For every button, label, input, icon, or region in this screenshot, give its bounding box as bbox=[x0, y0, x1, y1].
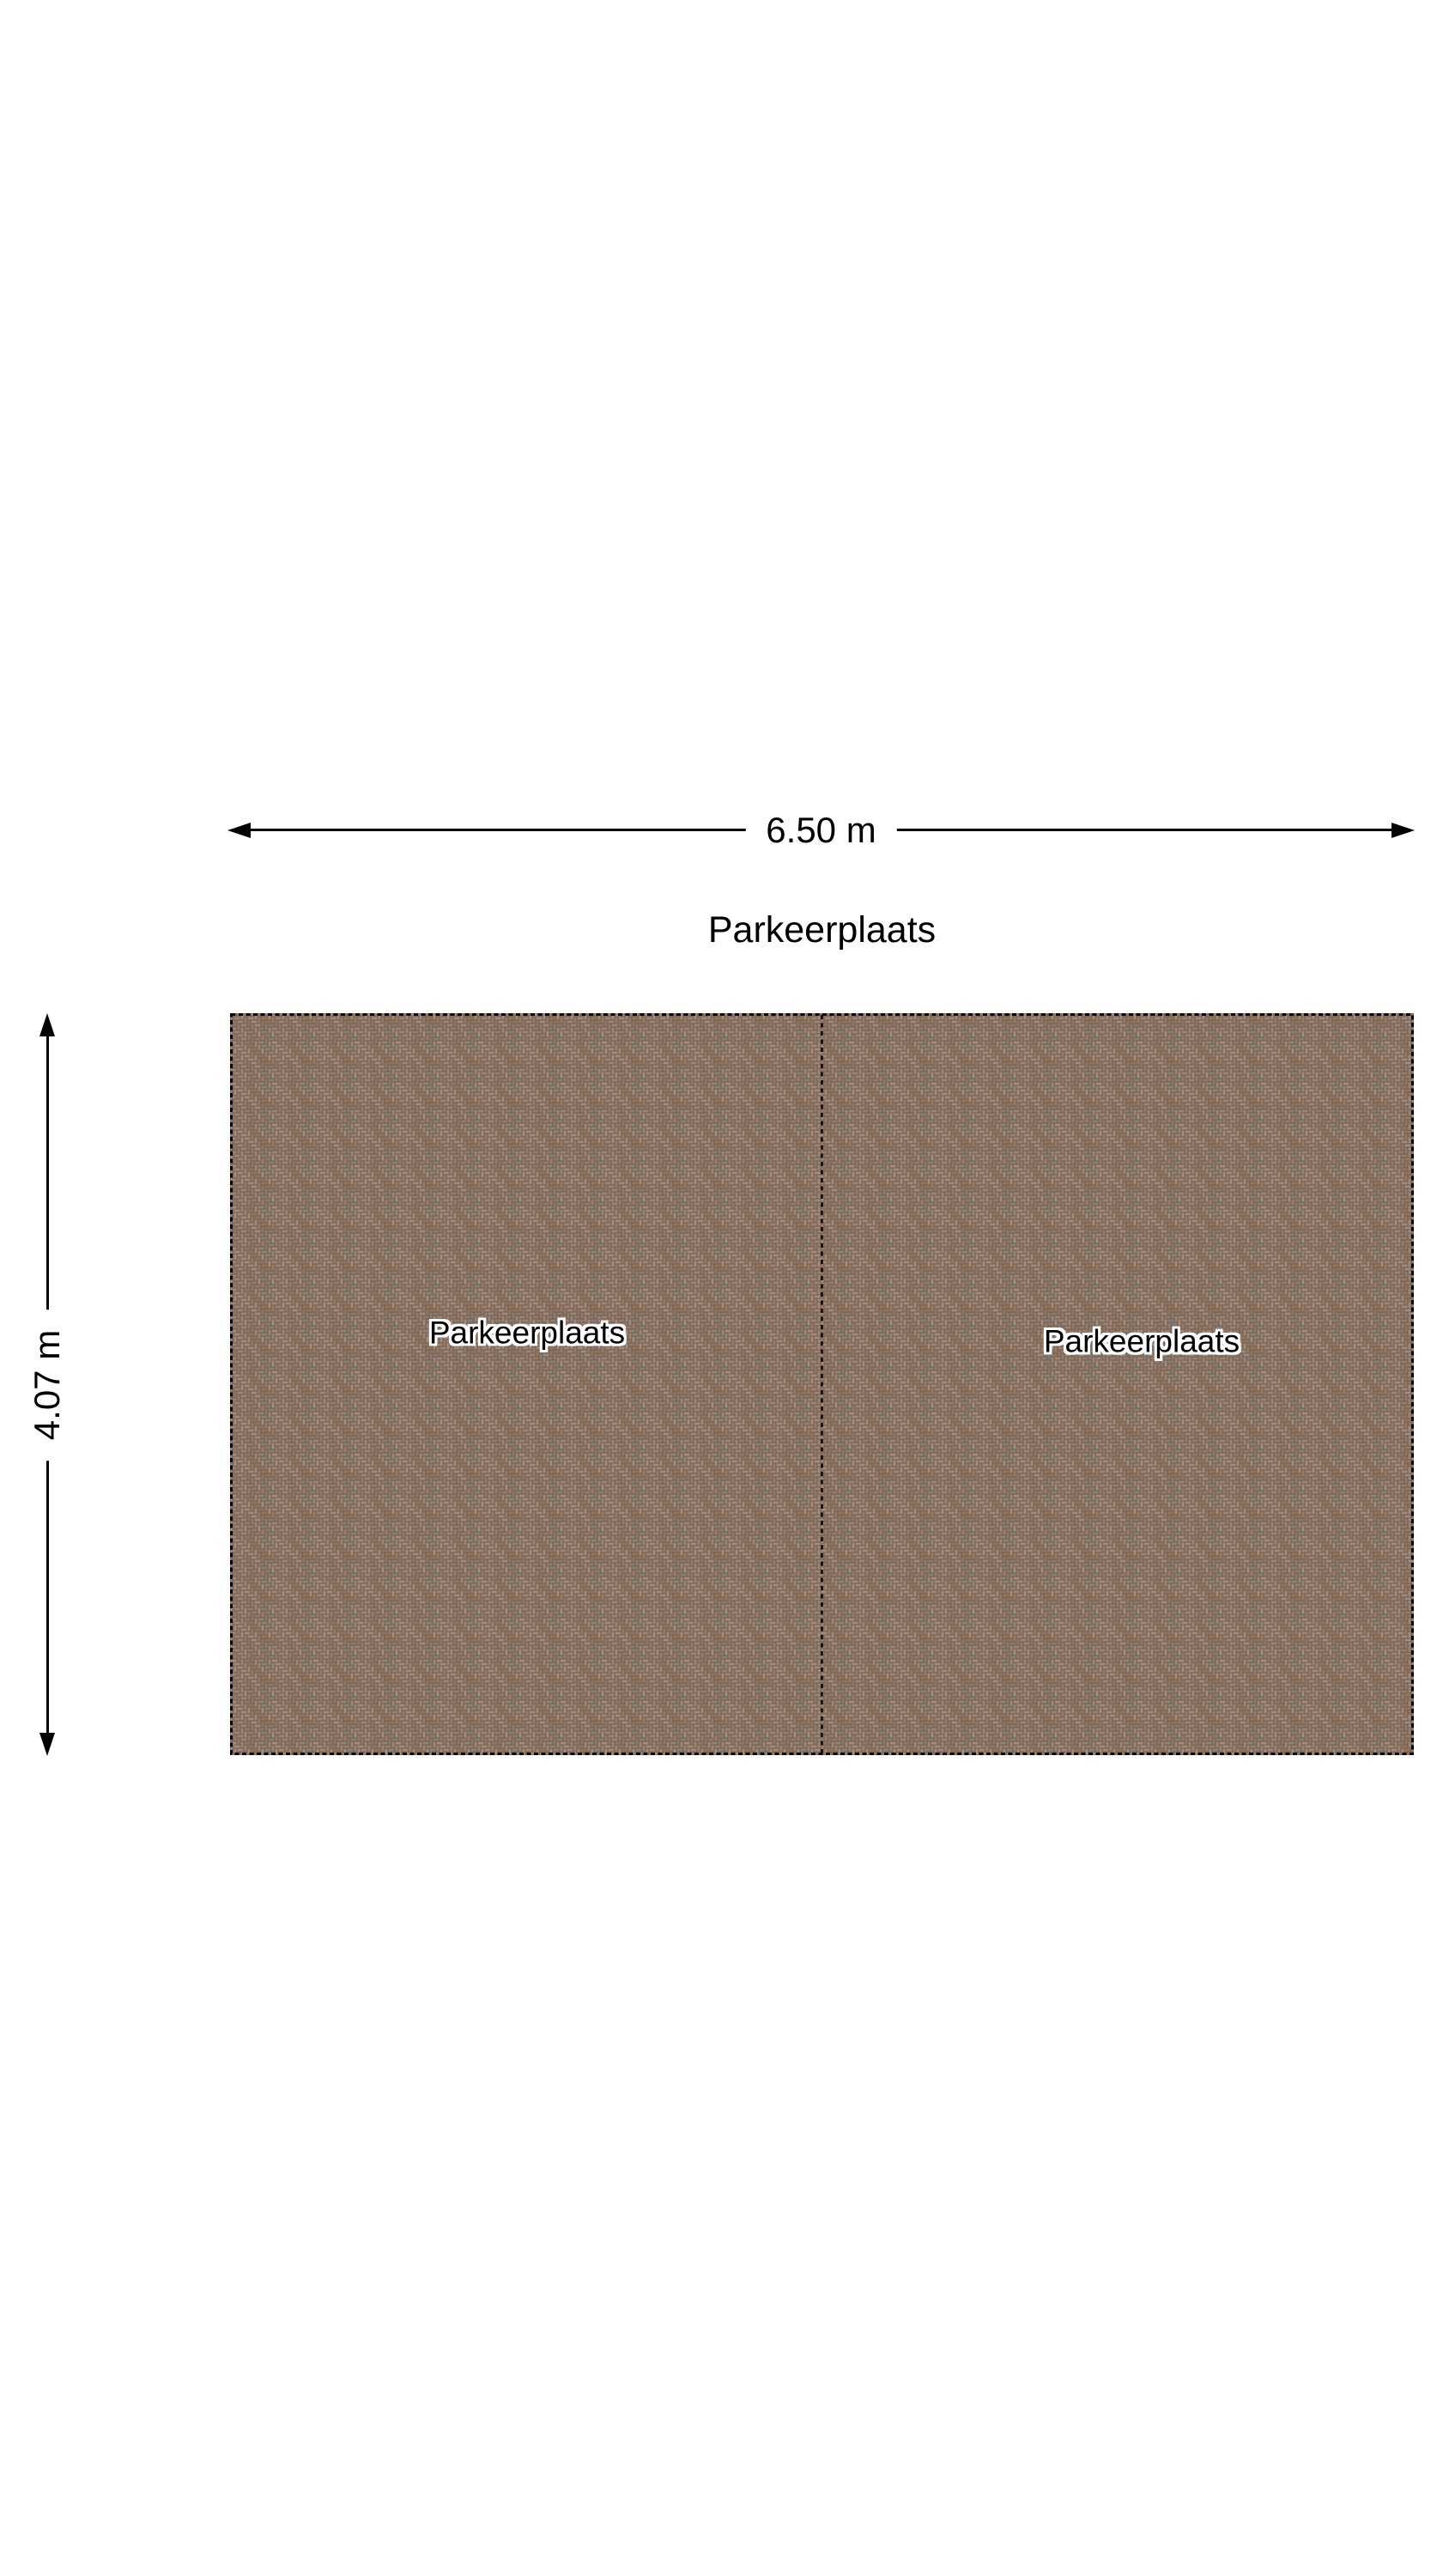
paving-texture bbox=[230, 1013, 1414, 1755]
parking-space-label-right: Parkeerplaats bbox=[1044, 1325, 1240, 1360]
arrowhead-left-icon bbox=[227, 823, 251, 838]
arrowhead-up-icon bbox=[39, 1013, 55, 1036]
width-dimension-label: 6.50 m bbox=[745, 811, 896, 850]
plan-title: Parkeerplaats bbox=[230, 910, 1414, 951]
width-dimension: 6.50 m bbox=[227, 816, 1415, 845]
height-dimension-label: 4.07 m bbox=[27, 1309, 67, 1460]
arrowhead-right-icon bbox=[1391, 823, 1415, 838]
floorplan-canvas: 6.50 m Parkeerplaats 4.07 m Parkeerplaat… bbox=[0, 0, 1449, 2576]
parking-space-label-left: Parkeerplaats bbox=[429, 1316, 625, 1352]
height-dimension: 4.07 m bbox=[33, 1013, 62, 1756]
arrowhead-down-icon bbox=[39, 1733, 55, 1756]
parking-area: Parkeerplaats Parkeerplaats bbox=[230, 1013, 1414, 1755]
